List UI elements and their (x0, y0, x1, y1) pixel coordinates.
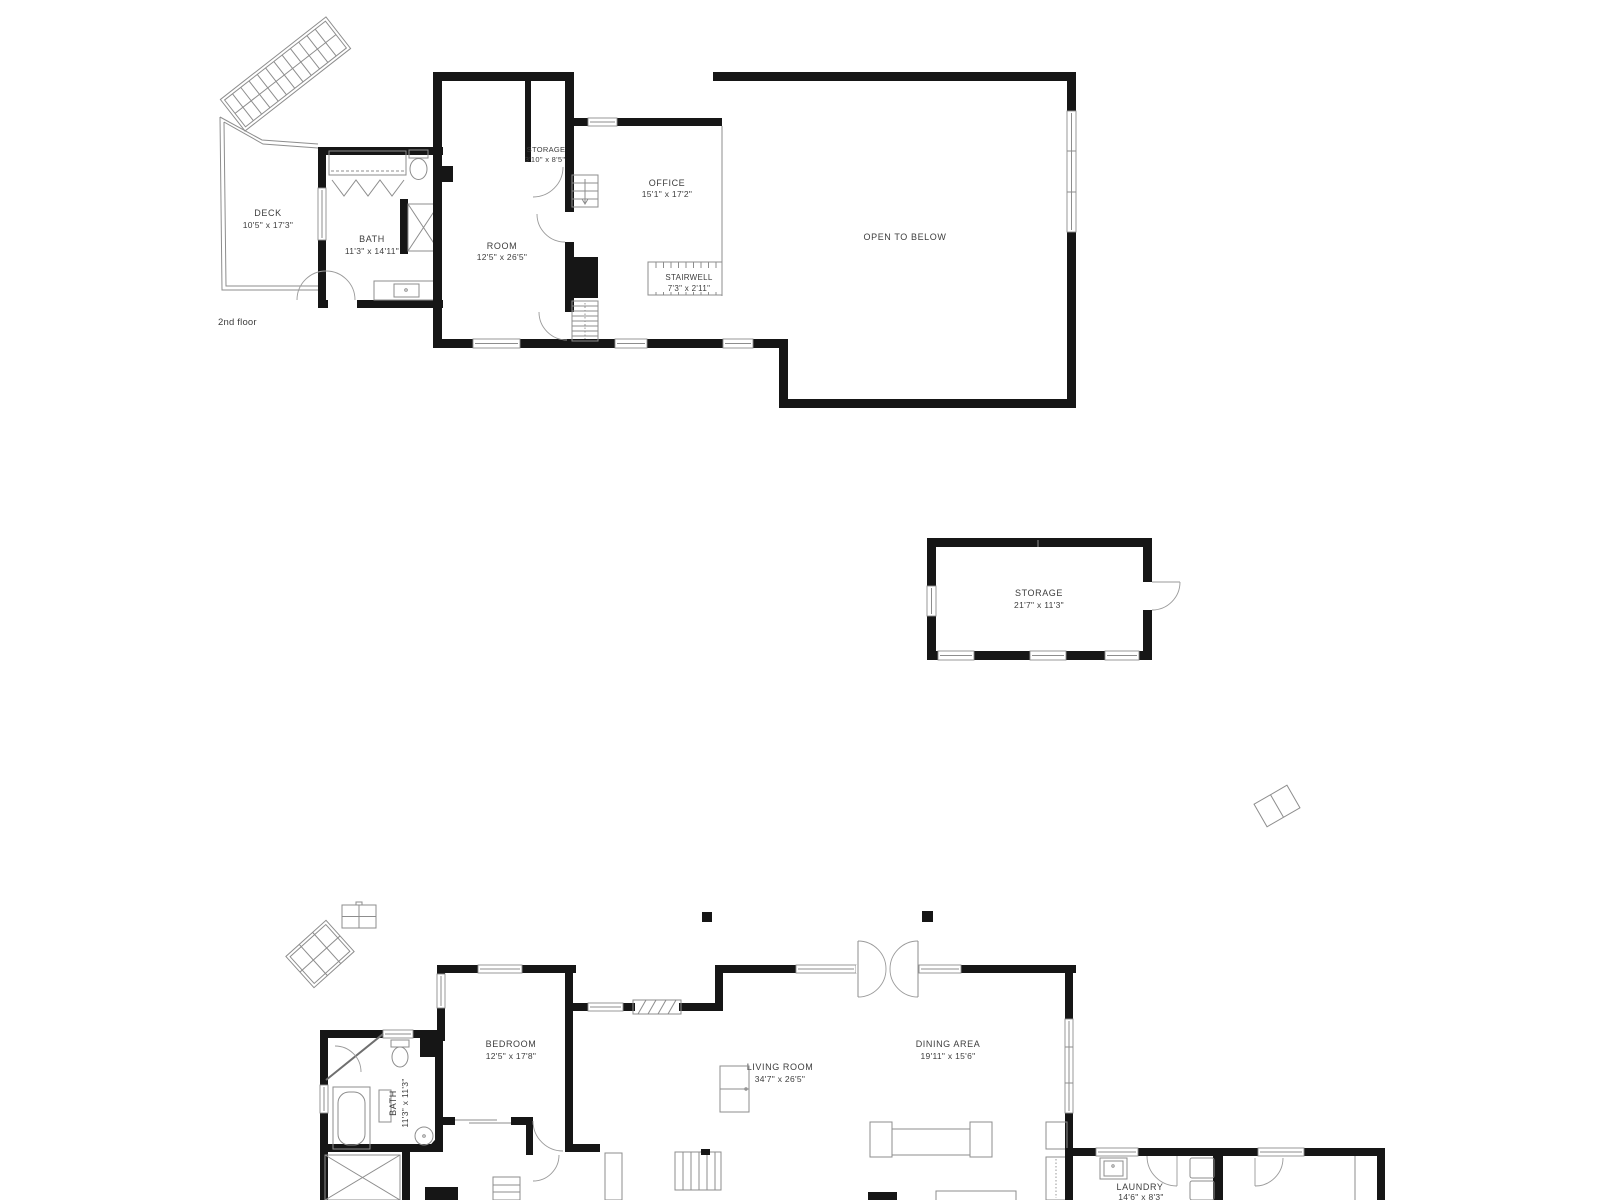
living-dining: LIVING ROOM 34'7" x 26'5" DINING AREA 19… (675, 965, 1073, 1200)
room-block: ROOM 12'5" x 26'5" STORAGE 3'10" x 8'5" (433, 72, 788, 348)
open-door-leaf (605, 1153, 622, 1200)
bedroom-dims: 12'5" x 17'8" (486, 1051, 537, 1061)
kitchen-island (870, 1122, 992, 1157)
room-door-arc (537, 214, 565, 242)
storage-door-arc (1152, 582, 1180, 610)
console-cabinet (720, 1066, 749, 1112)
porch-pillar-right (922, 911, 933, 922)
dining-area-dims: 19'11" x 15'6" (921, 1051, 976, 1061)
open-to-below-label: OPEN TO BELOW (864, 232, 947, 242)
storage-closet-door-arc (533, 167, 563, 197)
bath2-dims: 11'3" x 14'11" (345, 246, 399, 256)
floor-plan-page: DECK 10'5" x 17'3" (0, 0, 1600, 1200)
bath1-dims: 11'3" x 11'3" (400, 1078, 410, 1127)
open-to-below: OPEN TO BELOW (713, 72, 1076, 408)
bath2-label: BATH (359, 234, 385, 244)
bathtub (333, 1087, 370, 1149)
stairwell-label: STAIRWELL (665, 273, 713, 282)
bench-lower (868, 1192, 897, 1200)
door-mat (425, 1187, 458, 1200)
bedroom-door-arc (533, 1121, 563, 1151)
front-wall (715, 941, 1076, 997)
office-dims: 15'1" x 17'2" (642, 189, 693, 199)
bath1-label: BATH (388, 1090, 398, 1116)
storage-closet-label: STORAGE (527, 145, 566, 154)
kitchen-counter (1046, 1122, 1067, 1200)
bath-sink (374, 281, 435, 300)
table-lower (936, 1191, 1016, 1200)
angled-wall (326, 1034, 383, 1080)
office-label: OFFICE (649, 178, 686, 188)
floor-plan-image: DECK 10'5" x 17'3" (0, 0, 1600, 1200)
entry-steps (633, 1000, 681, 1014)
exterior-stairs (220, 17, 350, 131)
first-floor-plan: BEDROOM 12'5" x 17'8" (286, 902, 1385, 1200)
stairwell-dims: 7'3" x 2'11" (668, 284, 710, 293)
floor-label: 2nd floor (218, 317, 257, 328)
wardrobe (325, 1155, 400, 1200)
patio-table-small (342, 902, 376, 928)
interior-stairs (567, 175, 598, 341)
living-room-label: LIVING ROOM (747, 1062, 814, 1072)
room-label: ROOM (487, 241, 517, 251)
deck: DECK 10'5" x 17'3" (220, 117, 318, 290)
bifold-closet-doors (332, 180, 404, 196)
deck-dims: 10'5" x 17'3" (243, 220, 294, 230)
storage-outbuilding: STORAGE 21'7" x 11'3" (927, 538, 1180, 660)
laundry-wing: LAUNDRY 14'6" x 8'3" (1065, 1148, 1385, 1200)
room-lower-door-arc (539, 312, 567, 340)
mudroom-door-arc (1255, 1158, 1283, 1186)
dining-area-label: DINING AREA (916, 1039, 981, 1049)
stairwell: STAIRWELL 7'3" x 2'11" (648, 262, 722, 295)
bath-first-floor: BATH 11'3" x 11'3" (320, 1030, 443, 1200)
storage-closet-dims: 3'10" x 8'5" (525, 155, 566, 164)
living-room-dims: 34'7" x 26'5" (755, 1074, 806, 1084)
floor-grid (675, 1149, 721, 1190)
laundry-dims: 14'6" x 8'3" (1118, 1192, 1164, 1200)
pedestal-sink (415, 1127, 433, 1145)
storage-building-label: STORAGE (1015, 588, 1063, 598)
second-floor-plan: DECK 10'5" x 17'3" (218, 17, 1076, 408)
outdoor-side-table (1254, 785, 1300, 827)
bedroom-label: BEDROOM (486, 1039, 537, 1049)
hall-door-arc (533, 1155, 559, 1181)
front-entry (573, 965, 723, 1014)
toilet (391, 1040, 409, 1067)
deck-label: DECK (254, 208, 281, 218)
room-dims: 12'5" x 26'5" (477, 252, 528, 262)
washer-dryer (1190, 1158, 1214, 1200)
laundry-sink (1100, 1158, 1127, 1179)
bedroom: BEDROOM 12'5" x 17'8" (437, 965, 576, 1152)
stair-steps (493, 1177, 520, 1200)
bath-door-arc (335, 1046, 361, 1072)
porch-pillar-left (702, 912, 712, 922)
bath-second-floor: BATH 11'3" x 14'11" (297, 147, 443, 308)
laundry-label: LAUNDRY (1116, 1182, 1163, 1192)
storage-building-dims: 21'7" x 11'3" (1014, 600, 1064, 610)
patio-table-rotated (286, 920, 354, 987)
